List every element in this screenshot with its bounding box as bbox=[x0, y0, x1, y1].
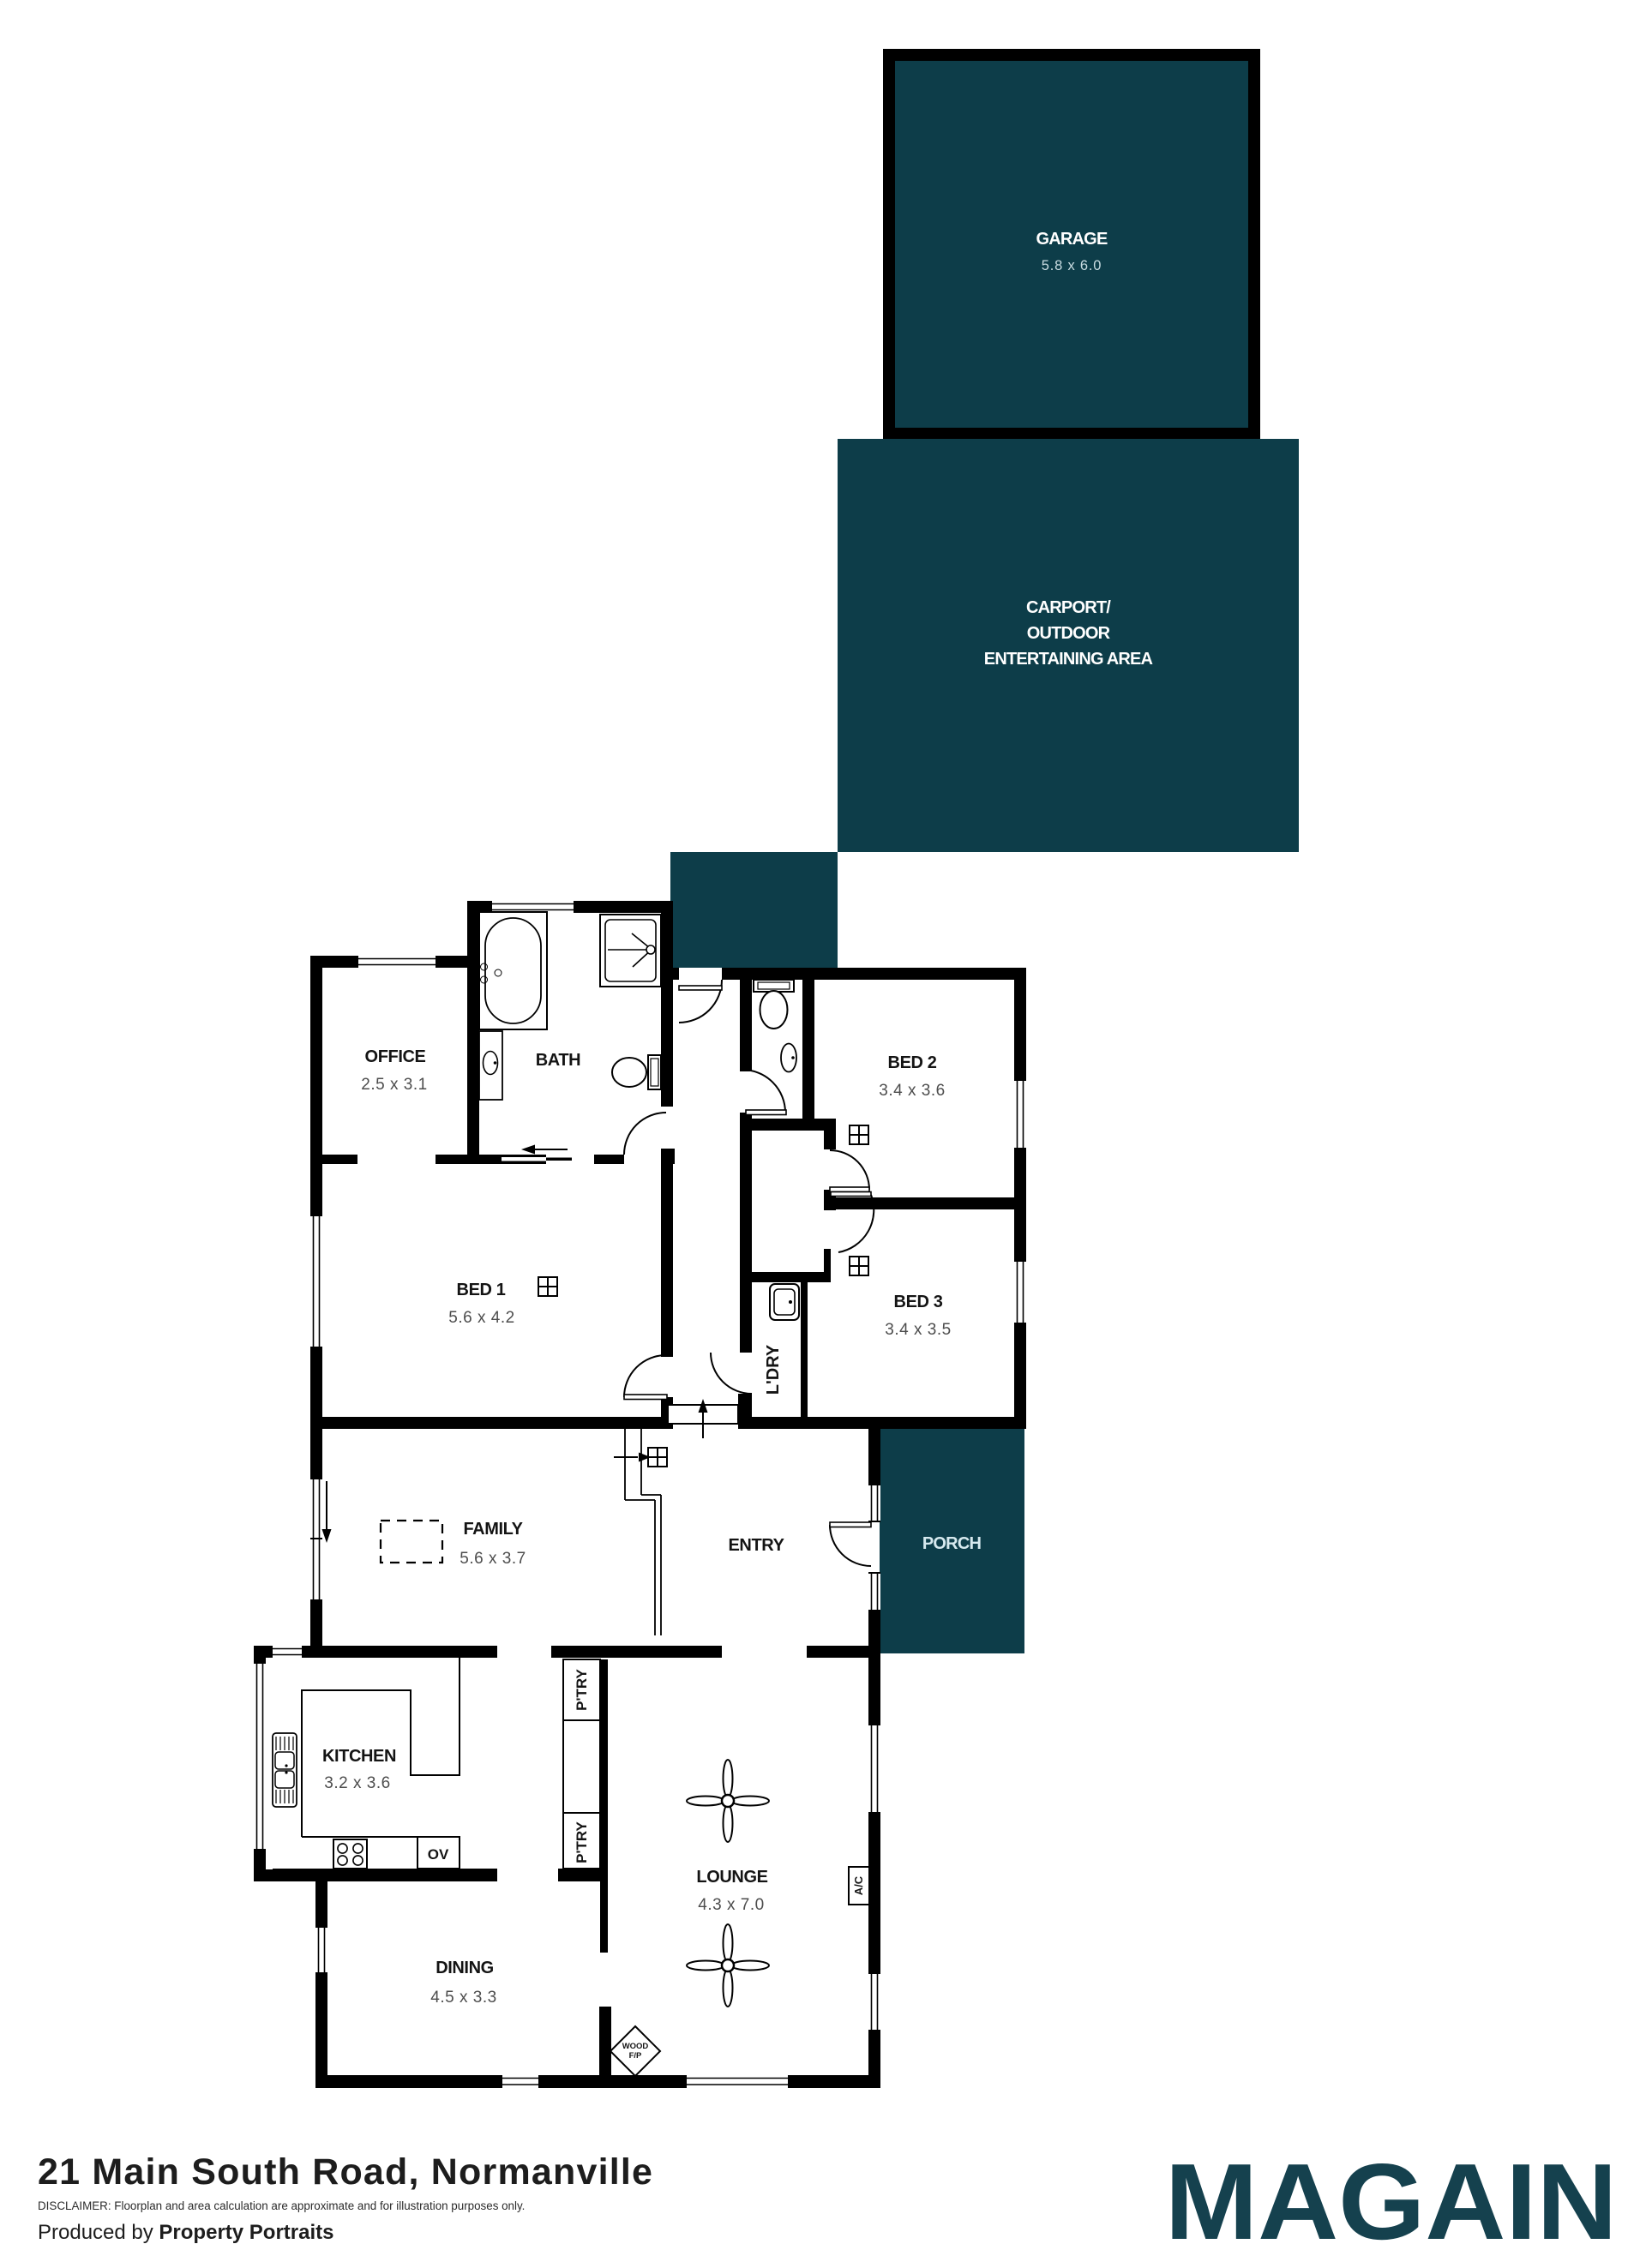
svg-text:P'TRY: P'TRY bbox=[574, 1821, 590, 1863]
svg-text:KITCHEN: KITCHEN bbox=[322, 1747, 396, 1766]
svg-text:5.6 x 4.2: 5.6 x 4.2 bbox=[448, 1309, 514, 1327]
svg-text:21 Main South Road, Normanvill: 21 Main South Road, Normanville bbox=[38, 2151, 653, 2193]
svg-text:GARAGE: GARAGE bbox=[1036, 230, 1108, 249]
svg-text:ENTRY: ENTRY bbox=[728, 1536, 784, 1555]
svg-text:2.5 x 3.1: 2.5 x 3.1 bbox=[361, 1076, 427, 1094]
svg-text:BATH: BATH bbox=[536, 1051, 580, 1070]
svg-text:BED 2: BED 2 bbox=[888, 1053, 937, 1072]
svg-text:4.5 x 3.3: 4.5 x 3.3 bbox=[430, 1989, 496, 2007]
svg-text:FAMILY: FAMILY bbox=[463, 1520, 523, 1539]
svg-text:OV: OV bbox=[428, 1846, 449, 1863]
svg-text:3.2 x 3.6: 3.2 x 3.6 bbox=[324, 1774, 390, 1792]
svg-text:DINING: DINING bbox=[436, 1959, 494, 1977]
svg-text:5.6 x 3.7: 5.6 x 3.7 bbox=[460, 1550, 526, 1568]
svg-text:LOUNGE: LOUNGE bbox=[696, 1868, 767, 1887]
svg-text:A/C: A/C bbox=[852, 1875, 865, 1895]
svg-text:3.4 x 3.5: 3.4 x 3.5 bbox=[885, 1321, 951, 1339]
svg-text:DISCLAIMER: Floorplan and area: DISCLAIMER: Floorplan and area calculati… bbox=[38, 2199, 525, 2212]
svg-text:3.4 x 3.6: 3.4 x 3.6 bbox=[879, 1082, 945, 1100]
svg-text:PORCH: PORCH bbox=[922, 1534, 982, 1553]
svg-text:WOOD: WOOD bbox=[622, 2042, 649, 2051]
svg-text:MAGAIN: MAGAIN bbox=[1165, 2142, 1618, 2263]
svg-text:F/P: F/P bbox=[629, 2051, 642, 2061]
svg-text:L'DRY: L'DRY bbox=[764, 1344, 783, 1395]
svg-text:CARPORT/: CARPORT/ bbox=[1026, 598, 1111, 617]
svg-text:Produced by Property Portraits: Produced by Property Portraits bbox=[38, 2221, 333, 2244]
svg-text:OFFICE: OFFICE bbox=[365, 1047, 426, 1066]
svg-text:ENTERTAINING AREA: ENTERTAINING AREA bbox=[984, 650, 1153, 669]
svg-text:4.3 x 7.0: 4.3 x 7.0 bbox=[698, 1896, 764, 1914]
svg-text:OUTDOOR: OUTDOOR bbox=[1027, 624, 1111, 643]
svg-text:BED 3: BED 3 bbox=[894, 1293, 943, 1311]
svg-text:P'TRY: P'TRY bbox=[574, 1668, 590, 1710]
svg-text:5.8 x 6.0: 5.8 x 6.0 bbox=[1042, 258, 1102, 273]
svg-text:BED 1: BED 1 bbox=[457, 1281, 506, 1299]
